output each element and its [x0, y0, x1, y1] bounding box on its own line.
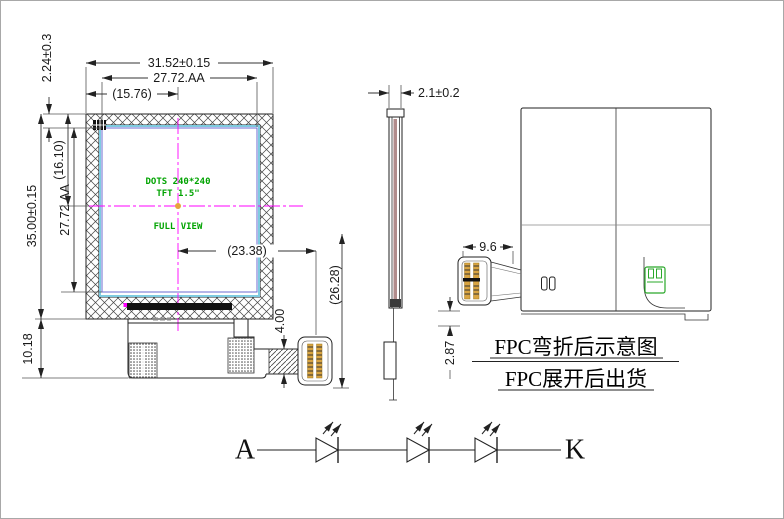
back-slot-right [550, 277, 556, 290]
corner-mark [93, 120, 106, 130]
led-symbol [316, 422, 341, 463]
svg-text:27.72.AA: 27.72.AA [153, 71, 205, 85]
dim-thickness: 2.1±0.2 [368, 85, 460, 108]
svg-text:9.6: 9.6 [479, 240, 496, 254]
front-view: DOTS 240*240 TFT 1.5" FULL VIEW [21, 34, 349, 388]
cathode-label: K [565, 435, 585, 466]
back-slot-left [542, 277, 548, 290]
svg-text:10.18: 10.18 [21, 333, 35, 364]
svg-text:(15.76): (15.76) [112, 87, 152, 101]
svg-text:(16.10): (16.10) [52, 140, 66, 180]
folded-fpc-connector [458, 257, 521, 305]
driver-ic-bar [127, 303, 232, 310]
folded-fpc-bottom [521, 314, 708, 320]
dim-tail-width: 4.00 [273, 309, 287, 388]
screen-label-size: TFT 1.5" [156, 189, 199, 199]
svg-text:27.72.AA: 27.72.AA [58, 184, 72, 236]
screen-label-view: FULL VIEW [154, 222, 203, 232]
dim-fpc-length: 10.18 [21, 319, 128, 378]
svg-text:(23.38): (23.38) [227, 244, 267, 258]
note-shipped: FPC展开后出货 [505, 367, 647, 391]
side-top-cap [387, 109, 404, 117]
fine-print-marks [153, 318, 171, 321]
side-fpc [384, 308, 397, 400]
center-dot [175, 203, 181, 209]
note-folded: FPC弯折后示意图 [494, 335, 657, 359]
connector-pins-left [308, 344, 314, 378]
led-diagram: A K [235, 422, 585, 466]
drawing-sheet: DOTS 240*240 TFT 1.5" FULL VIEW [0, 0, 784, 519]
magenta-mark [124, 303, 128, 307]
svg-text:35.00±0.15: 35.00±0.15 [25, 185, 39, 248]
glass-edge [100, 126, 259, 296]
side-panel-layer [394, 119, 398, 306]
dim-fpc-drop: 2.87 [438, 297, 460, 379]
fpc-connector [298, 337, 332, 385]
tft-module-drawing: DOTS 240*240 TFT 1.5" FULL VIEW [1, 1, 783, 518]
led-symbol [475, 422, 500, 463]
connector-pins-right [317, 344, 323, 378]
stiffener-right [228, 338, 254, 373]
fold-zone-hatch [269, 349, 298, 374]
screen-label-dots: DOTS 240*240 [145, 177, 210, 187]
svg-text:2.87: 2.87 [443, 341, 457, 365]
svg-text:2.24±0.3: 2.24±0.3 [40, 34, 54, 83]
svg-text:(26.28): (26.28) [328, 265, 342, 305]
front-fpc [128, 319, 332, 385]
connector-through-mark [645, 267, 665, 293]
anode-label: A [235, 435, 256, 466]
svg-text:31.52±0.15: 31.52±0.15 [148, 56, 211, 70]
notes: FPC弯折后示意图 FPC展开后出货 [472, 335, 679, 391]
svg-text:2.1±0.2: 2.1±0.2 [418, 86, 460, 100]
led-symbol [407, 422, 432, 463]
dim-half-width: (15.76) [86, 87, 178, 101]
side-bottom-block [390, 299, 401, 307]
svg-text:4.00: 4.00 [273, 309, 287, 333]
